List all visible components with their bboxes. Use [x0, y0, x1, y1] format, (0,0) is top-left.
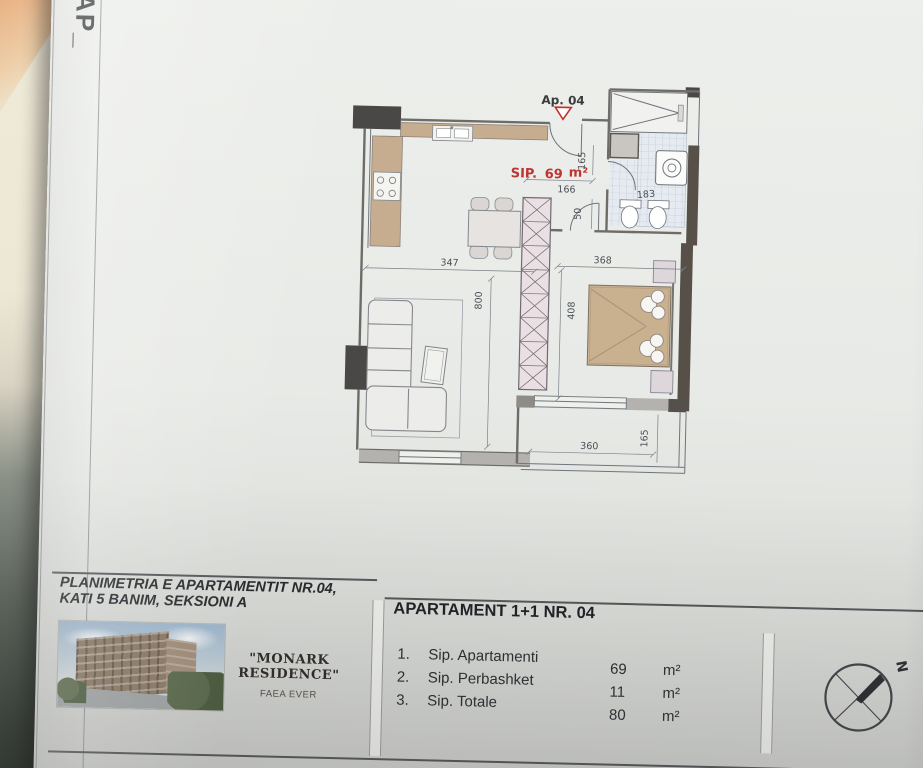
entrance-door	[549, 123, 582, 156]
area-row-number: 1.	[397, 646, 410, 663]
shower	[611, 92, 688, 134]
area-unit: m²	[569, 166, 589, 181]
dim-living-width: 347	[440, 258, 458, 269]
dim-door: 50	[573, 208, 584, 220]
coffee-table	[421, 346, 447, 385]
kitchen-counter	[370, 122, 548, 250]
sheet-margin-label: AP_	[70, 0, 101, 49]
floor-plan: 347 800 166 165 50 368 408 183 360	[327, 67, 717, 486]
title-block-divider	[760, 633, 775, 753]
brand-name: "MONARK RESIDENCE"	[214, 650, 365, 684]
bathroom	[608, 92, 688, 230]
drawing-sheet: AP_	[33, 0, 923, 768]
dim-balcony-width: 360	[580, 441, 598, 452]
stove	[373, 172, 401, 201]
apartment-entry-label: Ap. 04	[541, 93, 585, 108]
bedroom	[587, 259, 676, 395]
area-row-number: 2.	[397, 669, 410, 686]
area-row-label: Sip. Totale	[427, 692, 497, 711]
brand-block: "MONARK RESIDENCE" FAEA EVER	[213, 650, 364, 702]
area-row-label: Sip. Perbashket	[428, 669, 534, 688]
drawing-title: PLANIMETRIA E APARTAMENTIT NR.04, KATI 5…	[59, 575, 390, 615]
area-value: 69	[545, 167, 563, 182]
dim-bath: 183	[637, 189, 656, 201]
entrance-marker-icon	[555, 107, 571, 119]
area-row-number: 3.	[396, 692, 409, 709]
dim-hall-width: 166	[557, 184, 575, 195]
living-room	[365, 298, 462, 438]
building-photo	[57, 621, 225, 711]
nightstand	[653, 261, 676, 284]
compass-north-label: N	[892, 659, 910, 673]
photo-trees	[57, 675, 87, 704]
dim-living-height: 800	[473, 291, 484, 309]
title-block-divider	[369, 600, 385, 756]
dim-bedroom-height: 408	[566, 301, 577, 319]
dining-set	[468, 197, 521, 259]
title-block-border	[48, 750, 923, 768]
photo-of-floor-plan-sheet: AP_	[0, 0, 923, 768]
shaft	[610, 133, 639, 158]
north-compass: N	[810, 648, 912, 750]
brand-subtitle: FAEA EVER	[213, 687, 363, 702]
wardrobe	[519, 197, 552, 390]
sheet-margin-line	[35, 0, 55, 768]
dim-balcony-depth: 165	[639, 429, 650, 447]
washing-machine	[655, 151, 687, 186]
area-row-unit: m²	[662, 708, 680, 725]
nightstand	[651, 371, 674, 394]
area-prefix: SIP.	[511, 166, 538, 182]
apartment-header: APARTAMENT 1+1 NR. 04	[393, 600, 595, 624]
north-needle-icon	[855, 673, 885, 704]
area-row-value: 80	[609, 707, 626, 724]
dim-bedroom-width: 368	[593, 255, 611, 266]
area-row-label: Sip. Apartamenti	[428, 646, 538, 666]
